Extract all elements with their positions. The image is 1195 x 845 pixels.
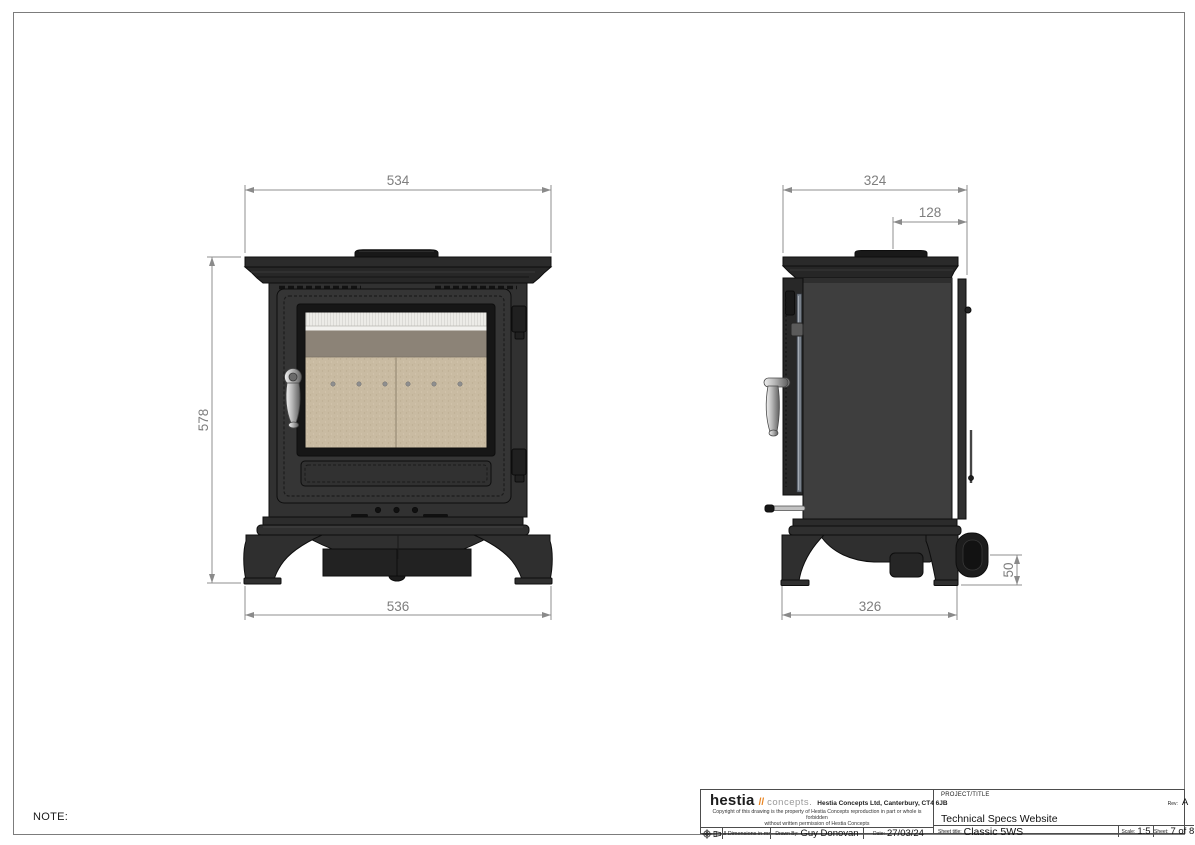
ash-box-side (890, 553, 923, 577)
dim-side-depth: 324 (864, 173, 887, 188)
crown-molding (245, 267, 551, 283)
revision-value: A (1182, 797, 1188, 808)
rear-outlet-spigot (956, 533, 988, 577)
revision: Rev:A (1168, 792, 1189, 810)
side-panel (803, 278, 952, 519)
dim-side-outlet-height: 50 (1001, 562, 1016, 577)
title-block-bottom-row-right: Sheet title: Classic 5WS Scale: 1:5 Shee… (934, 825, 1194, 837)
drawn-by-value: Guy Donovan (800, 828, 858, 839)
drawn-by-cell: Drawn By: Guy Donovan (771, 828, 864, 839)
front-view-drawing: 534 578 536 (183, 165, 583, 625)
project-title-label: PROJECT/TITLE (941, 792, 990, 798)
date-cell: Date: 27/03/24 (864, 828, 933, 839)
dim-front-top-width: 534 (387, 173, 410, 188)
sheet-number-cell: Sheet: 7 of 8 (1154, 826, 1194, 837)
dim-front-base-width: 536 (387, 599, 410, 614)
flue-collar-side (855, 251, 927, 258)
project-title-area: PROJECT/TITLE Rev:A Technical Specs Webs… (934, 790, 1194, 825)
crown-molding-side (783, 266, 958, 278)
flue-collar (355, 250, 438, 257)
company-logo: hestia // concepts. Hestia Concepts Ltd,… (701, 790, 933, 807)
dim-side-flue-offset: 128 (919, 205, 942, 220)
glass-clamp (791, 323, 803, 336)
door-glass (305, 312, 487, 448)
plinth-side (789, 526, 961, 535)
top-plate-side (783, 257, 958, 266)
third-angle-projection-icon (701, 828, 723, 839)
dim-front-height: 578 (196, 409, 211, 432)
legs-side (781, 535, 958, 586)
dim-side-base-depth: 326 (859, 599, 882, 614)
note-label: NOTE: (33, 811, 68, 823)
base-plate-side (793, 519, 957, 526)
copyright-notice: Copyright of this drawing is the propert… (701, 807, 933, 827)
riddling-lever (771, 506, 805, 511)
date-value: 27/03/24 (887, 828, 924, 839)
company-address: Hestia Concepts Ltd, Canterbury, CT4 6JB (817, 800, 947, 807)
rear-heat-shield (958, 279, 966, 519)
drawing-sheet: NOTE: (0, 0, 1195, 845)
title-block-project-pane: PROJECT/TITLE Rev:A Technical Specs Webs… (934, 790, 1194, 833)
dimensions-note: All Dimensions in mm (723, 828, 771, 839)
base-plate (263, 517, 523, 525)
plinth (257, 525, 529, 535)
title-block-bottom-row-left: All Dimensions in mm Drawn By: Guy Donov… (701, 827, 933, 839)
project-title-value: Technical Specs Website (941, 813, 1188, 825)
sheet-number-value: 7 of 8 (1170, 826, 1194, 837)
sheet-title-cell: Sheet title: Classic 5WS (934, 826, 1119, 837)
sheet-title-value: Classic 5WS (964, 826, 1024, 837)
baffle-plate (305, 331, 487, 358)
side-view-drawing: 324 128 326 50 (740, 165, 1050, 625)
stove-top-plate (245, 257, 551, 267)
legs (244, 535, 553, 584)
title-block-company-pane: hestia // concepts. Hestia Concepts Ltd,… (701, 790, 934, 833)
scale-cell: Scale: 1:5 (1119, 826, 1154, 837)
scale-value: 1:5 (1137, 826, 1150, 837)
title-block: hestia // concepts. Hestia Concepts Ltd,… (700, 789, 1185, 834)
